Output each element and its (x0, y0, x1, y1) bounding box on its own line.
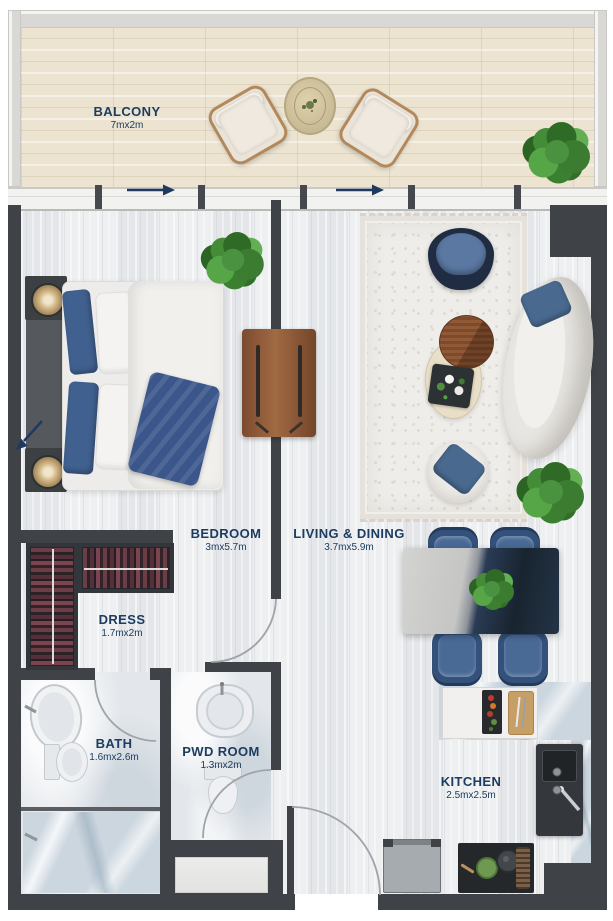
glass-mullion (408, 185, 415, 209)
vegetable-tray (482, 690, 502, 734)
glass-mullion (300, 185, 307, 209)
dress-label: DRESS 1.7mx2m (99, 612, 146, 639)
room-dimensions: 1.3mx2m (182, 760, 260, 771)
wall-pwd-right (271, 662, 281, 770)
wooden-spoon (460, 863, 474, 873)
kitchen-label: KITCHEN 2.5mx2.5m (441, 774, 502, 801)
room-dimensions: 7mx2m (93, 120, 160, 131)
entry-door (287, 806, 294, 895)
room-dimensions: 1.6mx2.6m (89, 752, 138, 763)
wall-left (8, 205, 21, 910)
wall-bedroom-south (21, 530, 173, 543)
wall-pwd-top (205, 662, 281, 672)
balcony-label: BALCONY 7mx2m (93, 104, 160, 131)
room-dimensions: 2.5mx2.5m (441, 790, 502, 801)
pwd-sink (196, 684, 254, 738)
room-name: PWD ROOM (182, 744, 260, 759)
glass-mullion (95, 185, 102, 209)
wall-bottom-left (8, 894, 295, 910)
room-name: KITCHEN (441, 774, 502, 789)
console-handle (298, 345, 302, 417)
toilet (56, 742, 88, 782)
room-name: BEDROOM (191, 526, 262, 541)
dining-table (403, 548, 559, 634)
wall-pwd-left (160, 668, 171, 844)
entry-closet (175, 857, 268, 893)
wall-right (591, 205, 607, 910)
shower-area (23, 812, 160, 893)
nightstand (25, 276, 67, 320)
room-name: DRESS (99, 612, 146, 627)
room-dimensions: 3.7mx5.9m (293, 542, 404, 553)
coffee-table-wood (439, 315, 494, 369)
glass-mullion (198, 185, 205, 209)
cooktop (458, 843, 534, 893)
nightstand (25, 448, 67, 492)
potted-plant (222, 249, 244, 271)
room-name: BATH (89, 736, 138, 751)
refrigerator (383, 839, 441, 893)
bath-label: BATH 1.6mx2.6m (89, 736, 138, 763)
balcony-wall-top (8, 10, 607, 28)
chair-seat-cushion (346, 95, 412, 161)
kitchen-sink (536, 744, 583, 836)
wardrobe (26, 543, 78, 670)
wall-bottom-right (378, 894, 607, 910)
dining-chair (498, 630, 548, 686)
room-dimensions: 1.7mx2m (99, 628, 146, 639)
hanging-clothes (31, 548, 73, 665)
bread-board (516, 847, 530, 889)
bedroom-label: BEDROOM 3mx5.7m (191, 526, 262, 553)
room-dimensions: 3mx5.7m (191, 542, 262, 553)
balcony-wall-left (8, 10, 21, 187)
shower-partition (21, 807, 160, 811)
wall-corner-column (550, 205, 607, 257)
room-name: LIVING & DINING (293, 526, 404, 541)
console-table (242, 329, 316, 437)
floor-plan-canvas: BALCONY 7mx2m BEDROOM 3mx5.7m LIVING & D… (0, 0, 613, 921)
hanging-clothes (83, 548, 169, 588)
glass-mullion (514, 185, 521, 209)
balcony-round-table (284, 77, 336, 135)
bed-pillow-navy (63, 381, 99, 475)
console-handle (256, 345, 260, 417)
potted-plant (539, 480, 563, 504)
wall-kitchen-notch (544, 863, 607, 894)
decor-tray (427, 363, 474, 408)
chair-seat-cushion (215, 92, 281, 158)
wardrobe (78, 543, 174, 593)
dining-chair (432, 630, 482, 686)
cutting-board (508, 691, 534, 735)
living-dining-label: LIVING & DINING 3.7mx5.9m (293, 526, 404, 553)
table-centerpiece-plant (484, 581, 500, 597)
pot (476, 857, 498, 879)
potted-plant (545, 140, 569, 164)
room-name: BALCONY (93, 104, 160, 119)
balcony-wall-right (594, 10, 607, 187)
pwd-room-label: PWD ROOM 1.3mx2m (182, 744, 260, 771)
